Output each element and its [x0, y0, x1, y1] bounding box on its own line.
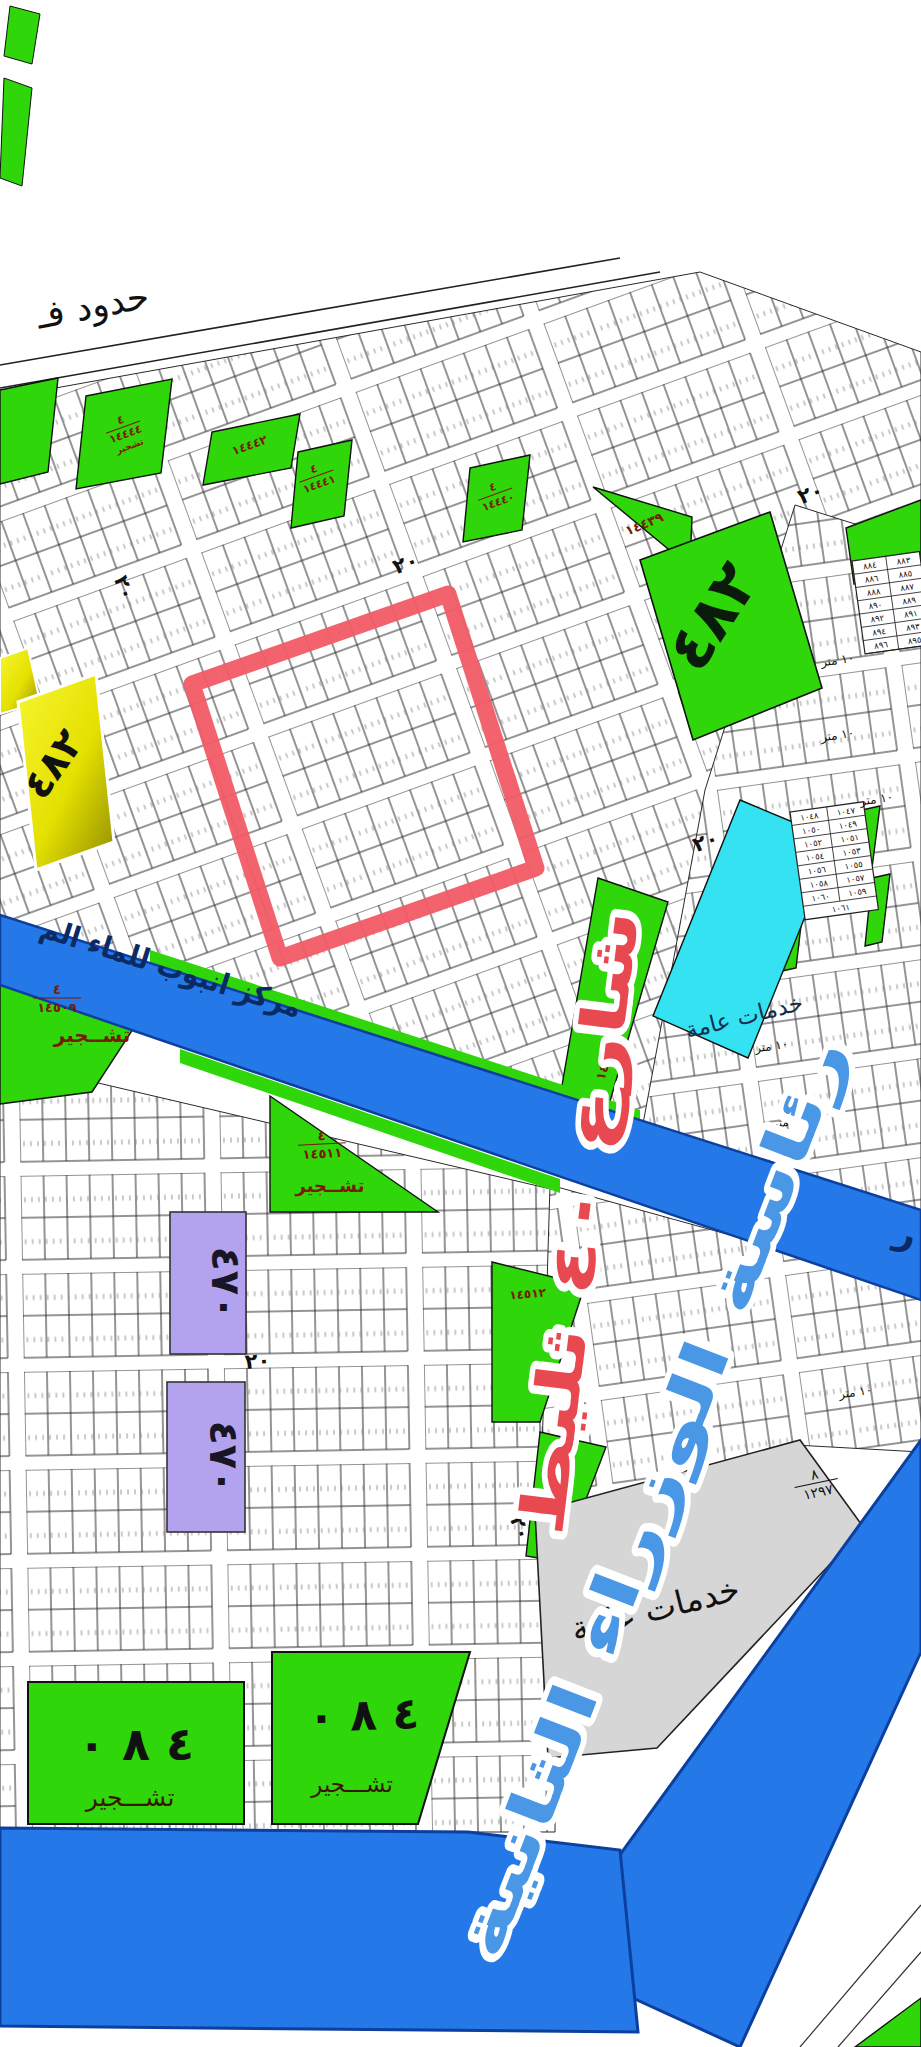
green-block-480-left: ٤ ٨ ٠ تشـــجير	[28, 1682, 244, 1824]
plot-block-880s: ٨٨٤٨٨٣٨٨٦٨٨٥٨٨٨٨٨٧٨٩٠٨٨٩٨٩٢٨٩١٨٩٤٨٩٣٨٩٦٨…	[852, 552, 921, 654]
svg-text:٨٩٢: ٨٩٢	[870, 613, 885, 625]
svg-text:٨٨٩: ٨٨٩	[902, 595, 917, 607]
purple-470-top-label: ٤٧٠	[203, 1246, 249, 1319]
green-480-left-number: ٤ ٨ ٠	[78, 1717, 194, 1771]
svg-text:٤: ٤	[317, 1128, 326, 1143]
green-480-left-use: تشـــجير	[84, 1783, 175, 1812]
subdivision-map: حدود فـ ٤٨٢ ٤٨٢	[0, 0, 921, 2047]
plot-block-1050s: ١٠٤٨١٠٤٧١٠٥٠١٠٤٩١٠٥٢١٠٥١١٠٥٤١٠٥٣١٠٥٦١٠٥٥…	[790, 802, 878, 920]
svg-text:٨٩١: ٨٩١	[903, 608, 918, 620]
svg-text:٨٨٤: ٨٨٤	[862, 560, 877, 572]
label-14511-use: تشــجير	[295, 1175, 365, 1197]
svg-text:٨٨٧: ٨٨٧	[900, 581, 915, 593]
svg-text:٤: ٤	[53, 982, 61, 997]
green-480-mid-number: ٤ ٨ ٠	[307, 1687, 420, 1742]
svg-text:٨٩٠: ٨٩٠	[868, 599, 883, 611]
svg-text:٨٩٣: ٨٩٣	[905, 621, 920, 633]
svg-text:٨٩٥: ٨٩٥	[907, 634, 921, 646]
svg-text:٨٨٣: ٨٨٣	[896, 555, 911, 567]
street-20-d: ٢٠	[244, 1348, 271, 1374]
svg-text:٨٩٤: ٨٩٤	[872, 626, 887, 638]
svg-text:٨٨٥: ٨٨٥	[898, 568, 913, 580]
svg-text:١٤٥٠٩: ١٤٥٠٩	[37, 1000, 77, 1015]
svg-text:٨٨٨: ٨٨٨	[866, 586, 881, 598]
purple-470-bottom-label: ٤٧٠	[201, 1420, 247, 1493]
svg-text:٨٨٦: ٨٨٦	[864, 573, 879, 585]
svg-text:٨٩٦: ٨٩٦	[874, 639, 889, 651]
svg-text:١٤٥١١: ١٤٥١١	[302, 1145, 342, 1162]
subdivision-map-screenshot: حدود فـ ٤٨٢ ٤٨٢	[0, 0, 921, 2047]
label-14509-use: تشــجير	[53, 1023, 131, 1047]
green-480-mid-use: تشـــجير	[310, 1771, 393, 1798]
